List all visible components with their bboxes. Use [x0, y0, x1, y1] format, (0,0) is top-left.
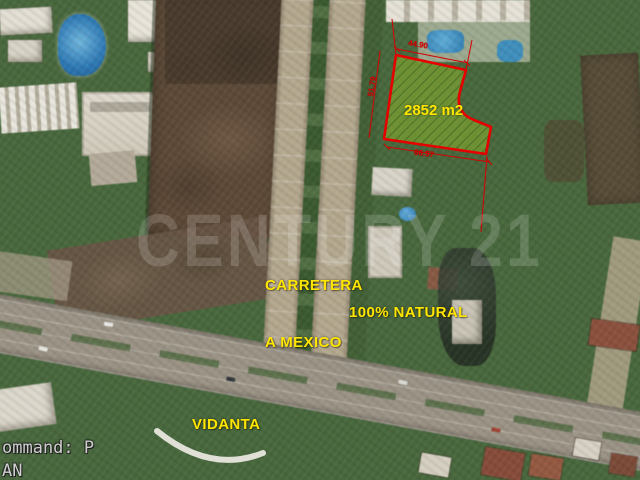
map-canvas[interactable]: 44.90 51.79 66.57 CENTURY 21 2852 m2 CAR… — [0, 0, 640, 480]
vidanta-label: VIDANTA — [192, 415, 260, 434]
command-line-text-2: AN — [2, 461, 22, 480]
natural-label: 100% NATURAL — [349, 303, 468, 322]
road-label-line2: A MEXICO — [265, 333, 363, 352]
parcel-area-label: 2852 m2 — [404, 102, 463, 119]
pedestrian-bridge — [157, 431, 263, 460]
road-label-line1: CARRETERA — [265, 276, 363, 295]
command-line-text: ommand: P — [2, 438, 94, 458]
